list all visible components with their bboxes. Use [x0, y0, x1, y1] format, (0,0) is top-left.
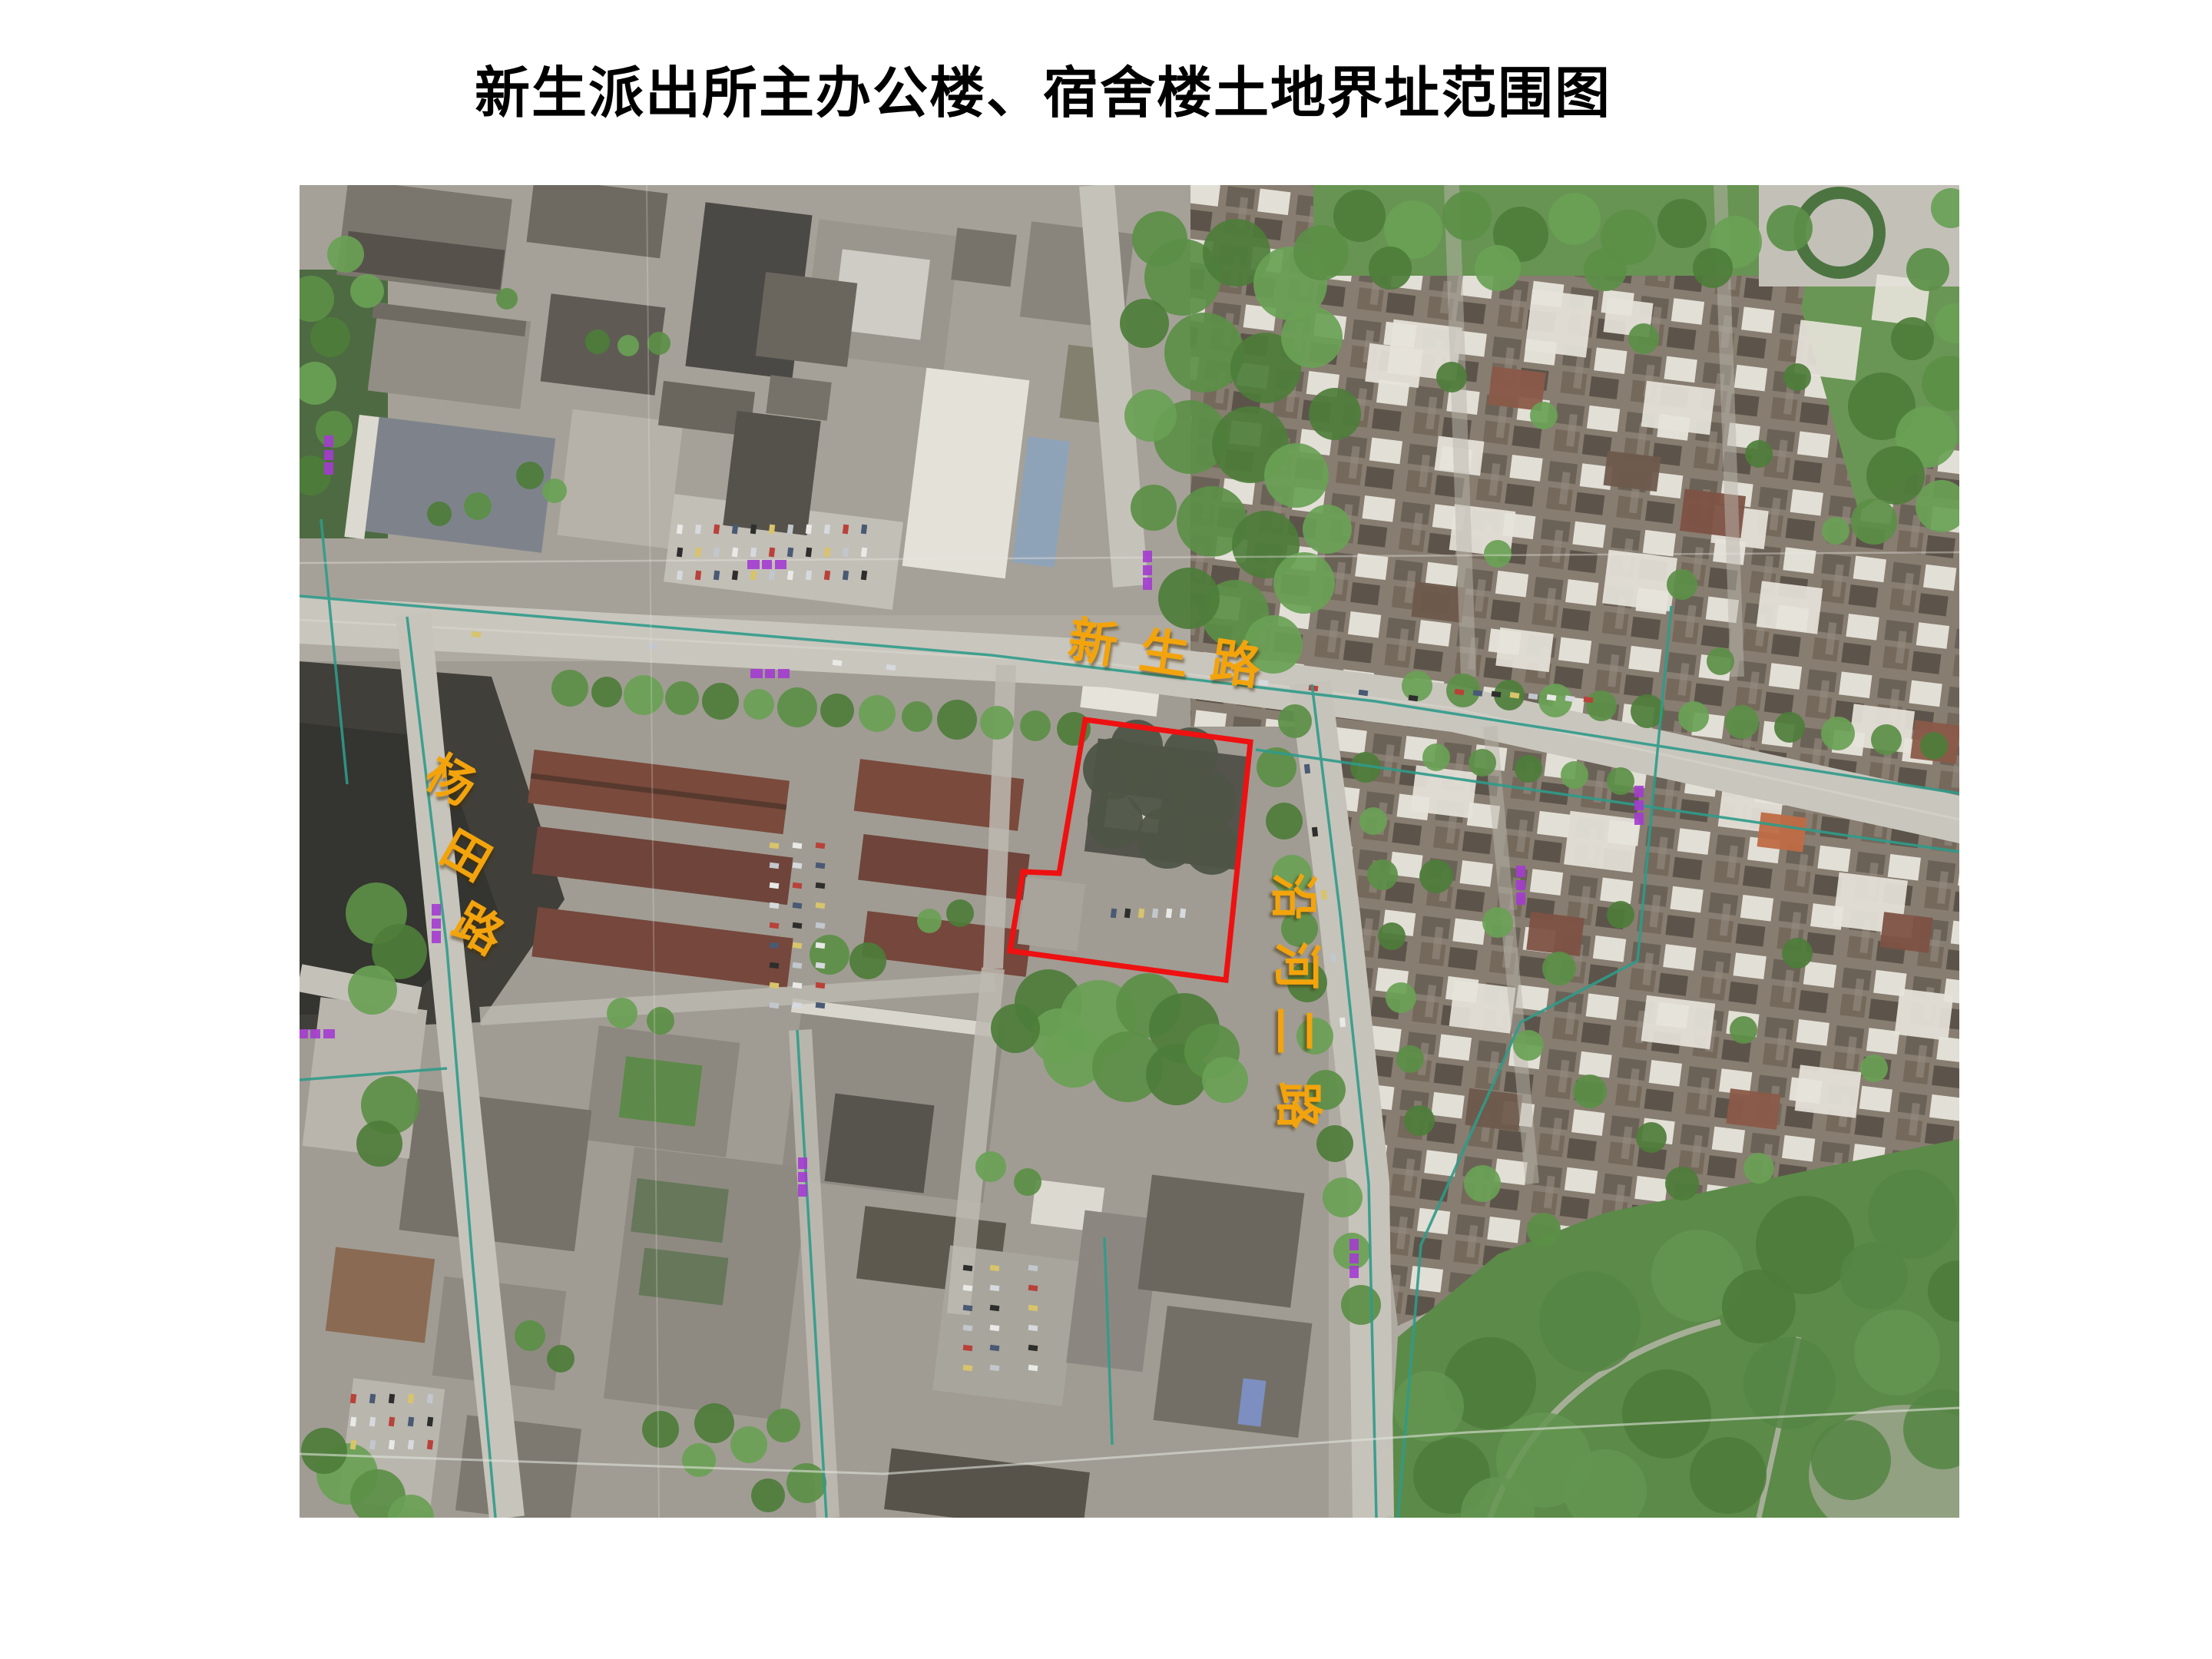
road-label-yanhe-char: 河 [1268, 938, 1323, 993]
page-title: 新生派出所主办公楼、宿舍楼土地界址范围图 [475, 48, 1611, 128]
document-page: 新生派出所主办公楼、宿舍楼土地界址范围图 [0, 0, 2212, 1659]
satellite-map: 新生路 杨 田 路 沿 河 二 路 [300, 185, 1959, 1518]
road-label-yanhe-char: 路 [1270, 1078, 1325, 1133]
road-label-yanhe-char: 沿 [1265, 869, 1320, 924]
aerial-photo [300, 185, 1959, 1518]
road-label-yanhe-char: 二 [1266, 1003, 1321, 1058]
